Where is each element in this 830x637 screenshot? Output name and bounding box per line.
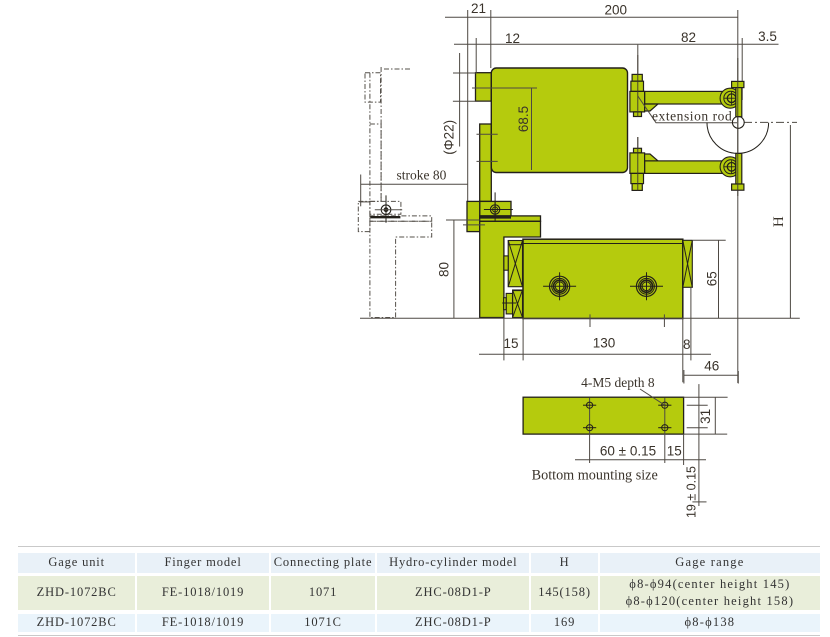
svg-text:21: 21 bbox=[471, 1, 486, 16]
svg-text:46: 46 bbox=[704, 359, 719, 374]
svg-text:60 ± 0.15: 60 ± 0.15 bbox=[600, 444, 656, 459]
svg-text:3.5: 3.5 bbox=[758, 29, 777, 44]
svg-text:4-M5 depth 8: 4-M5 depth 8 bbox=[581, 375, 655, 390]
svg-text:15: 15 bbox=[667, 444, 682, 459]
svg-text:130: 130 bbox=[593, 336, 616, 351]
svg-text:12: 12 bbox=[505, 31, 520, 46]
svg-text:65: 65 bbox=[705, 271, 720, 286]
svg-text:68.5: 68.5 bbox=[516, 106, 531, 132]
svg-text:Bottom mounting size: Bottom mounting size bbox=[532, 467, 658, 483]
svg-text:stroke 80: stroke 80 bbox=[396, 168, 446, 183]
svg-text:19 ± 0.15: 19 ± 0.15 bbox=[685, 466, 699, 518]
svg-text:80: 80 bbox=[437, 262, 452, 277]
svg-text:200: 200 bbox=[605, 3, 628, 18]
svg-text:8: 8 bbox=[683, 337, 691, 352]
svg-text:H: H bbox=[771, 216, 787, 227]
svg-text:15: 15 bbox=[503, 336, 518, 351]
svg-text:(Φ22): (Φ22) bbox=[441, 120, 456, 155]
svg-text:31: 31 bbox=[698, 409, 713, 424]
svg-text:extension rod: extension rod bbox=[652, 109, 732, 124]
svg-text:82: 82 bbox=[681, 30, 696, 45]
